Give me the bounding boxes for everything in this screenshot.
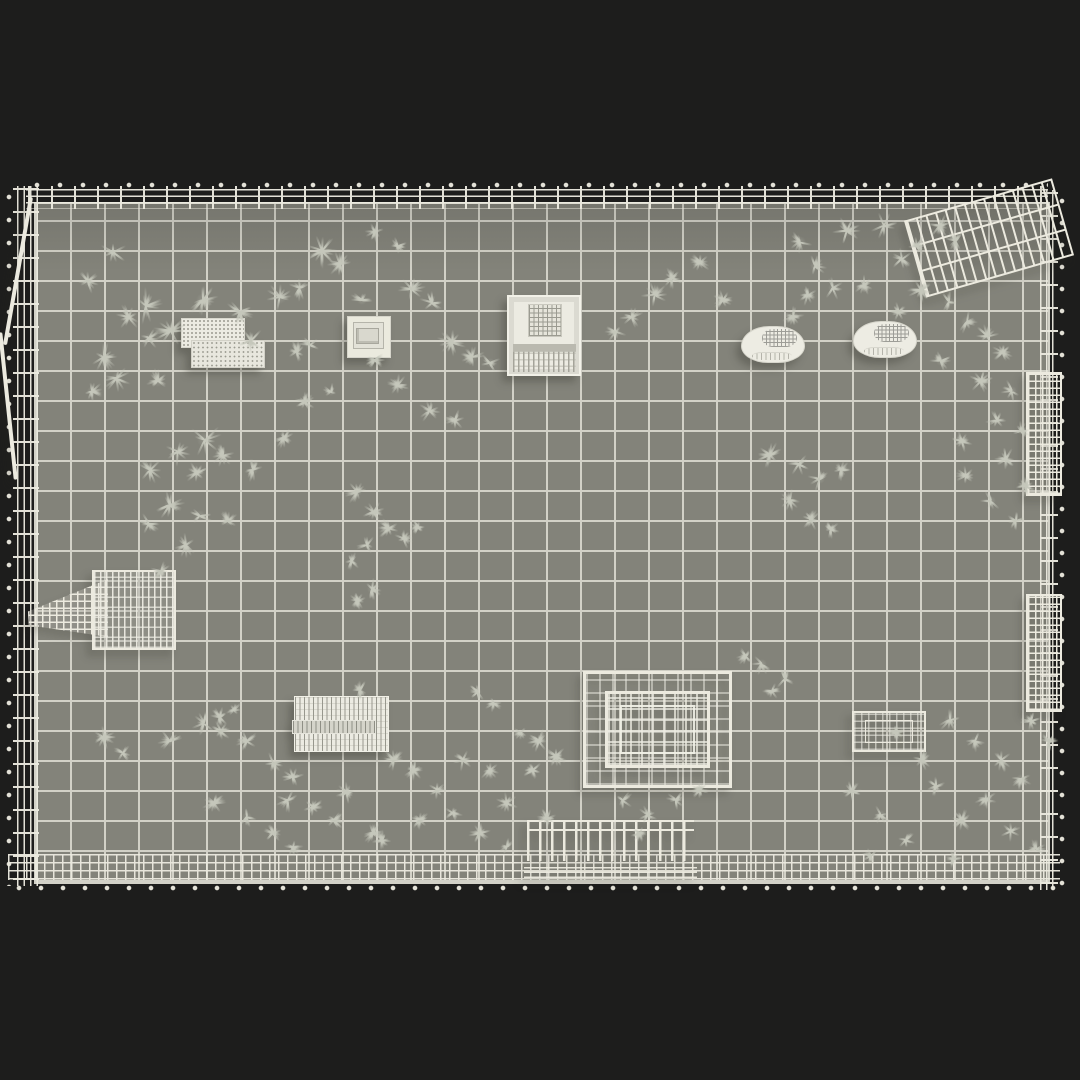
grass-layer [0, 0, 1080, 1080]
grass-clump [950, 429, 974, 453]
grass-clump [468, 821, 492, 845]
grass-clump [408, 517, 428, 537]
grass-clump [409, 809, 431, 831]
grass-clump [263, 823, 283, 843]
grass-clump [1009, 767, 1033, 791]
grass-clump [349, 287, 375, 313]
grass-clump [416, 397, 444, 425]
grass-clump [273, 427, 295, 449]
grass-clump [955, 465, 977, 487]
grass-clump [484, 693, 504, 713]
grass-clump [735, 645, 757, 667]
grass-clump [388, 236, 408, 256]
grass-clump [402, 758, 426, 782]
grass-clump [911, 749, 933, 771]
grass-clump [419, 290, 445, 316]
grass-clump [659, 265, 685, 291]
grass-clump [224, 296, 256, 328]
grass-clump [80, 379, 104, 403]
grass-clump [186, 502, 214, 530]
grass-clump [544, 744, 568, 768]
grass-clump [536, 807, 558, 829]
grass-clump [1000, 379, 1024, 403]
grass-clump [1025, 838, 1047, 860]
grass-clump [342, 551, 362, 571]
grass-clump [386, 373, 410, 397]
grass-clump [895, 829, 917, 851]
grass-clump [756, 441, 784, 469]
grass-clump [74, 267, 102, 295]
grass-clump [869, 803, 893, 827]
grass-clump [326, 250, 354, 278]
grass-clump [210, 442, 236, 468]
grass-clump [236, 326, 266, 356]
grass-clump [799, 507, 823, 531]
grass-clump [1010, 420, 1032, 442]
grass-clump [150, 560, 172, 582]
grass-clump [611, 788, 635, 812]
grass-clump [102, 363, 132, 393]
grass-clump [994, 447, 1018, 471]
grass-clump [821, 519, 841, 539]
grass-clump [282, 836, 304, 858]
grass-clump [286, 274, 314, 302]
grass-clump [349, 679, 371, 701]
grass-clump [761, 680, 783, 702]
grass-clump [156, 727, 184, 755]
grass-clump [1020, 710, 1042, 732]
grass-clump [235, 805, 259, 829]
grass-clump [364, 221, 386, 243]
grass-clump [943, 849, 963, 869]
grass-clump [201, 790, 227, 816]
grass-clump [136, 511, 162, 537]
grass-clump [335, 781, 359, 805]
grass-clump [478, 758, 502, 782]
grass-clump [364, 349, 386, 371]
grass-clump [665, 789, 687, 811]
grass-clump [984, 407, 1010, 433]
grass-clump [478, 351, 502, 375]
grass-clump [111, 741, 135, 765]
grass-clump [425, 778, 449, 802]
grass-clump [831, 215, 863, 247]
grass-clump [925, 775, 947, 797]
grass-clump [135, 455, 165, 485]
grass-clump [853, 274, 875, 296]
grass-clump [781, 304, 805, 328]
grass-clump [521, 758, 545, 782]
grass-clump [450, 747, 476, 773]
grass-clump [136, 325, 162, 351]
grass-clump [510, 722, 532, 744]
grass-clump [830, 459, 852, 481]
grass-clump [234, 728, 260, 754]
grass-clump [950, 808, 974, 832]
grass-clump [944, 229, 968, 253]
grass-clump [907, 276, 935, 304]
grass-clump [840, 779, 864, 803]
grass-clump [1015, 475, 1037, 497]
grass-clump [630, 823, 650, 843]
grass-clump [275, 787, 301, 813]
grass-clump [224, 700, 244, 720]
grass-clump [1039, 731, 1059, 751]
grass-clump [216, 509, 240, 533]
grass-clump [348, 591, 368, 611]
grass-clump [241, 458, 265, 482]
grass-clump [185, 282, 221, 318]
grass-clump [786, 228, 814, 256]
grass-clump [936, 706, 964, 734]
grass-clump [183, 459, 211, 487]
grass-clump [496, 836, 518, 858]
grass-clump [1005, 510, 1027, 532]
grass-clump [321, 382, 341, 402]
grass-clump [974, 787, 998, 811]
grass-clump [173, 532, 199, 558]
grass-clump [886, 722, 906, 742]
grass-clump [371, 829, 393, 851]
grass-clump [962, 728, 988, 754]
grass-clump [97, 236, 129, 268]
grass-clump [322, 808, 346, 832]
grass-clump [1000, 820, 1022, 842]
grass-clump [979, 489, 1003, 513]
grass-clump [929, 349, 953, 373]
grass-clump [688, 250, 712, 274]
grass-clump [712, 289, 734, 311]
grass-clump [802, 253, 828, 279]
grass-clump [281, 765, 305, 789]
scene [0, 0, 1080, 1080]
grass-clump [144, 367, 172, 395]
grass-clump [298, 333, 322, 357]
grass-clump [443, 408, 467, 432]
grass-clump [690, 780, 710, 800]
grass-clump [495, 791, 519, 815]
grass-clump [869, 211, 899, 241]
grass-clump [442, 802, 464, 824]
grass-clump [294, 391, 316, 413]
grass-clump [968, 368, 994, 394]
grass-clump [861, 846, 881, 866]
grass-clump [887, 300, 911, 324]
grass-clump [991, 340, 1015, 364]
